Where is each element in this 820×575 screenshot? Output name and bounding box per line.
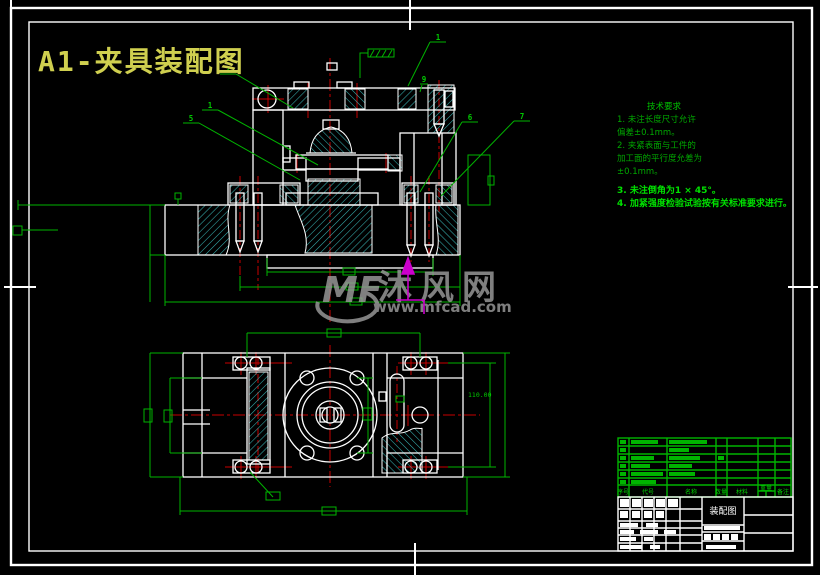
tech-note-line-bold: 3. 未注倒角为1 × 45°。 bbox=[617, 185, 767, 198]
plan-dim-value: 110.00 bbox=[468, 391, 492, 399]
plan-centerlines bbox=[170, 345, 480, 487]
drawing-sheet: 2 1 5 1 9 6 7 bbox=[0, 0, 820, 575]
bom-headers: 序号 代号 名称 数量 材料 重量 备注 bbox=[617, 484, 789, 496]
cad-drawing-canvas: 2 1 5 1 9 6 7 bbox=[0, 0, 820, 575]
tech-notes: 技术要求 1. 未注长度尺寸允许 偏差±0.1mm。 2. 夹紧表面与工件的 加… bbox=[617, 101, 767, 211]
bom-header-weight: 重量 bbox=[760, 484, 772, 492]
callout-1a: 1 bbox=[208, 101, 213, 110]
callout-1b: 1 bbox=[436, 33, 441, 42]
tech-note-line: 加工面的平行度允差为 bbox=[617, 153, 767, 166]
tech-note-line: 1. 未注长度尺寸允许 bbox=[617, 114, 767, 127]
tech-note-line: ±0.1mm。 bbox=[617, 166, 767, 179]
bom-header-code: 代号 bbox=[642, 488, 654, 496]
bom-header-qty: 数量 bbox=[715, 488, 727, 496]
bom-table: 序号 代号 名称 数量 材料 重量 备注 bbox=[617, 438, 791, 497]
drawing-title: A1-夹具装配图 bbox=[38, 40, 245, 80]
callout-5: 5 bbox=[189, 114, 194, 123]
tech-note-line: 2. 夹紧表面与工件的 bbox=[617, 140, 767, 153]
title-block-drawing-name: 装配图 bbox=[709, 505, 736, 517]
plan-view: 110.00 bbox=[144, 329, 510, 515]
bom-header-material: 材料 bbox=[736, 488, 748, 496]
bom-header-name: 名称 bbox=[685, 488, 697, 496]
callout-7: 7 bbox=[520, 112, 525, 121]
watermark: MF 沐风网 www.mfcad.com bbox=[317, 268, 511, 321]
bom-header-remark: 备注 bbox=[777, 488, 789, 496]
bom-header-seq: 序号 bbox=[617, 488, 629, 496]
callout-6: 6 bbox=[468, 113, 473, 122]
title-block: 装配图 bbox=[618, 497, 793, 551]
tech-notes-heading: 技术要求 bbox=[617, 101, 767, 114]
watermark-site-url: www.mfcad.com bbox=[373, 298, 512, 316]
callout-9: 9 bbox=[422, 75, 427, 84]
tech-note-line-bold: 4. 加紧强度检验试验按有关标准要求进行。 bbox=[617, 198, 767, 211]
tech-note-line: 偏差±0.1mm。 bbox=[617, 127, 767, 140]
